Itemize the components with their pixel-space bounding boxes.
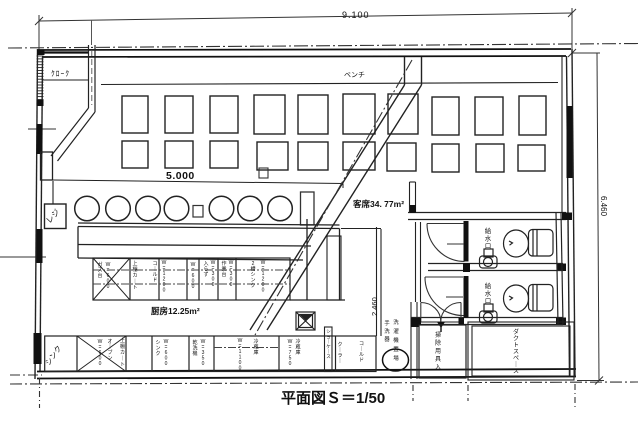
svg-text:上棚カ｜ト: 上棚カ｜ト [120, 337, 125, 368]
svg-text:客席34. 77m²: 客席34. 77m² [352, 199, 404, 209]
svg-text:冷蔵庫: 冷蔵庫 [295, 338, 300, 356]
svg-text:コ｜ルド: コ｜ルド [152, 261, 157, 284]
svg-text:洗濯機置場: 洗濯機置場 [393, 318, 399, 362]
svg-text:コ｜ルド: コ｜ルド [359, 341, 364, 364]
svg-text:手洗器: 手洗器 [384, 319, 390, 343]
svg-text:冷蔵庫: 冷蔵庫 [253, 338, 258, 356]
svg-text:ガス台: ガス台 [97, 261, 102, 279]
svg-text:シンク: シンク [155, 340, 160, 357]
svg-text:6.460: 6.460 [599, 196, 608, 217]
svg-text:給水口: 給水口 [485, 226, 492, 250]
svg-text:平面図Ｓ＝1/50: 平面図Ｓ＝1/50 [281, 390, 385, 407]
svg-text:上棚カ｜ト: 上棚カ｜ト [132, 260, 137, 291]
svg-text:ショ｜ケ｜ス: ショ｜ケ｜ス [326, 329, 331, 359]
svg-text:2.460: 2.460 [370, 297, 379, 316]
svg-text:9.100: 9.100 [342, 10, 370, 20]
svg-text:厨房12.25m²: 厨房12.25m² [151, 306, 200, 316]
svg-text:オ｜ブン: オ｜ブン [107, 339, 112, 362]
svg-text:掃除用具入: 掃除用具入 [435, 331, 441, 371]
svg-text:ダクトスペ｜ス: ダクトスペ｜ス [513, 328, 519, 375]
svg-text:5.000: 5.000 [166, 170, 195, 182]
svg-text:ク｜ラ｜: ク｜ラ｜ [337, 342, 342, 365]
svg-text:乾洗機: 乾洗機 [192, 339, 197, 357]
svg-text:入らず: 入らず [203, 261, 208, 278]
svg-text:ベンチ: ベンチ [344, 71, 365, 79]
svg-text:ｸﾛｰｸ: ｸﾛｰｸ [51, 69, 70, 78]
svg-text:給水口: 給水口 [485, 281, 492, 305]
svg-text:作業台: 作業台 [221, 260, 226, 278]
